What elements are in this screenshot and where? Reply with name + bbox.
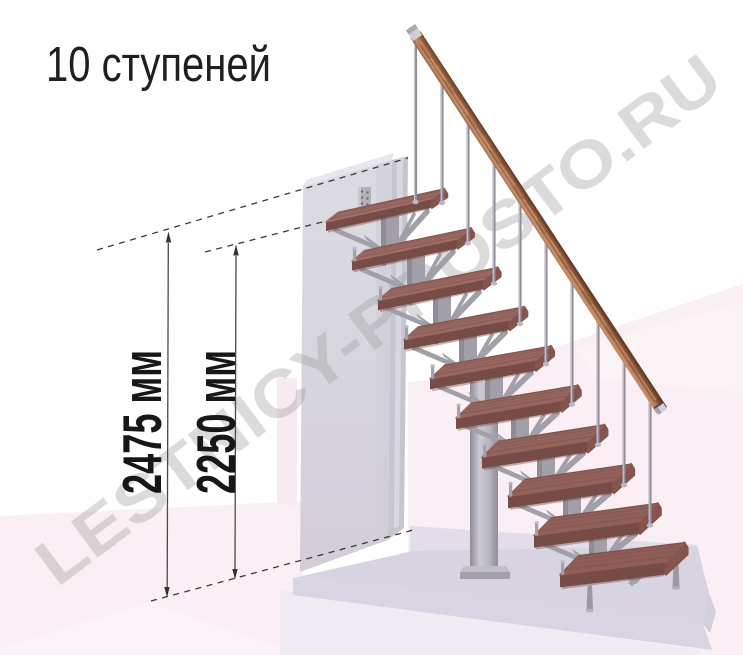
svg-text:2475 мм: 2475 мм <box>111 350 173 494</box>
svg-text:10 ступеней: 10 ступеней <box>46 38 271 92</box>
svg-text:2250 мм: 2250 мм <box>185 350 247 494</box>
